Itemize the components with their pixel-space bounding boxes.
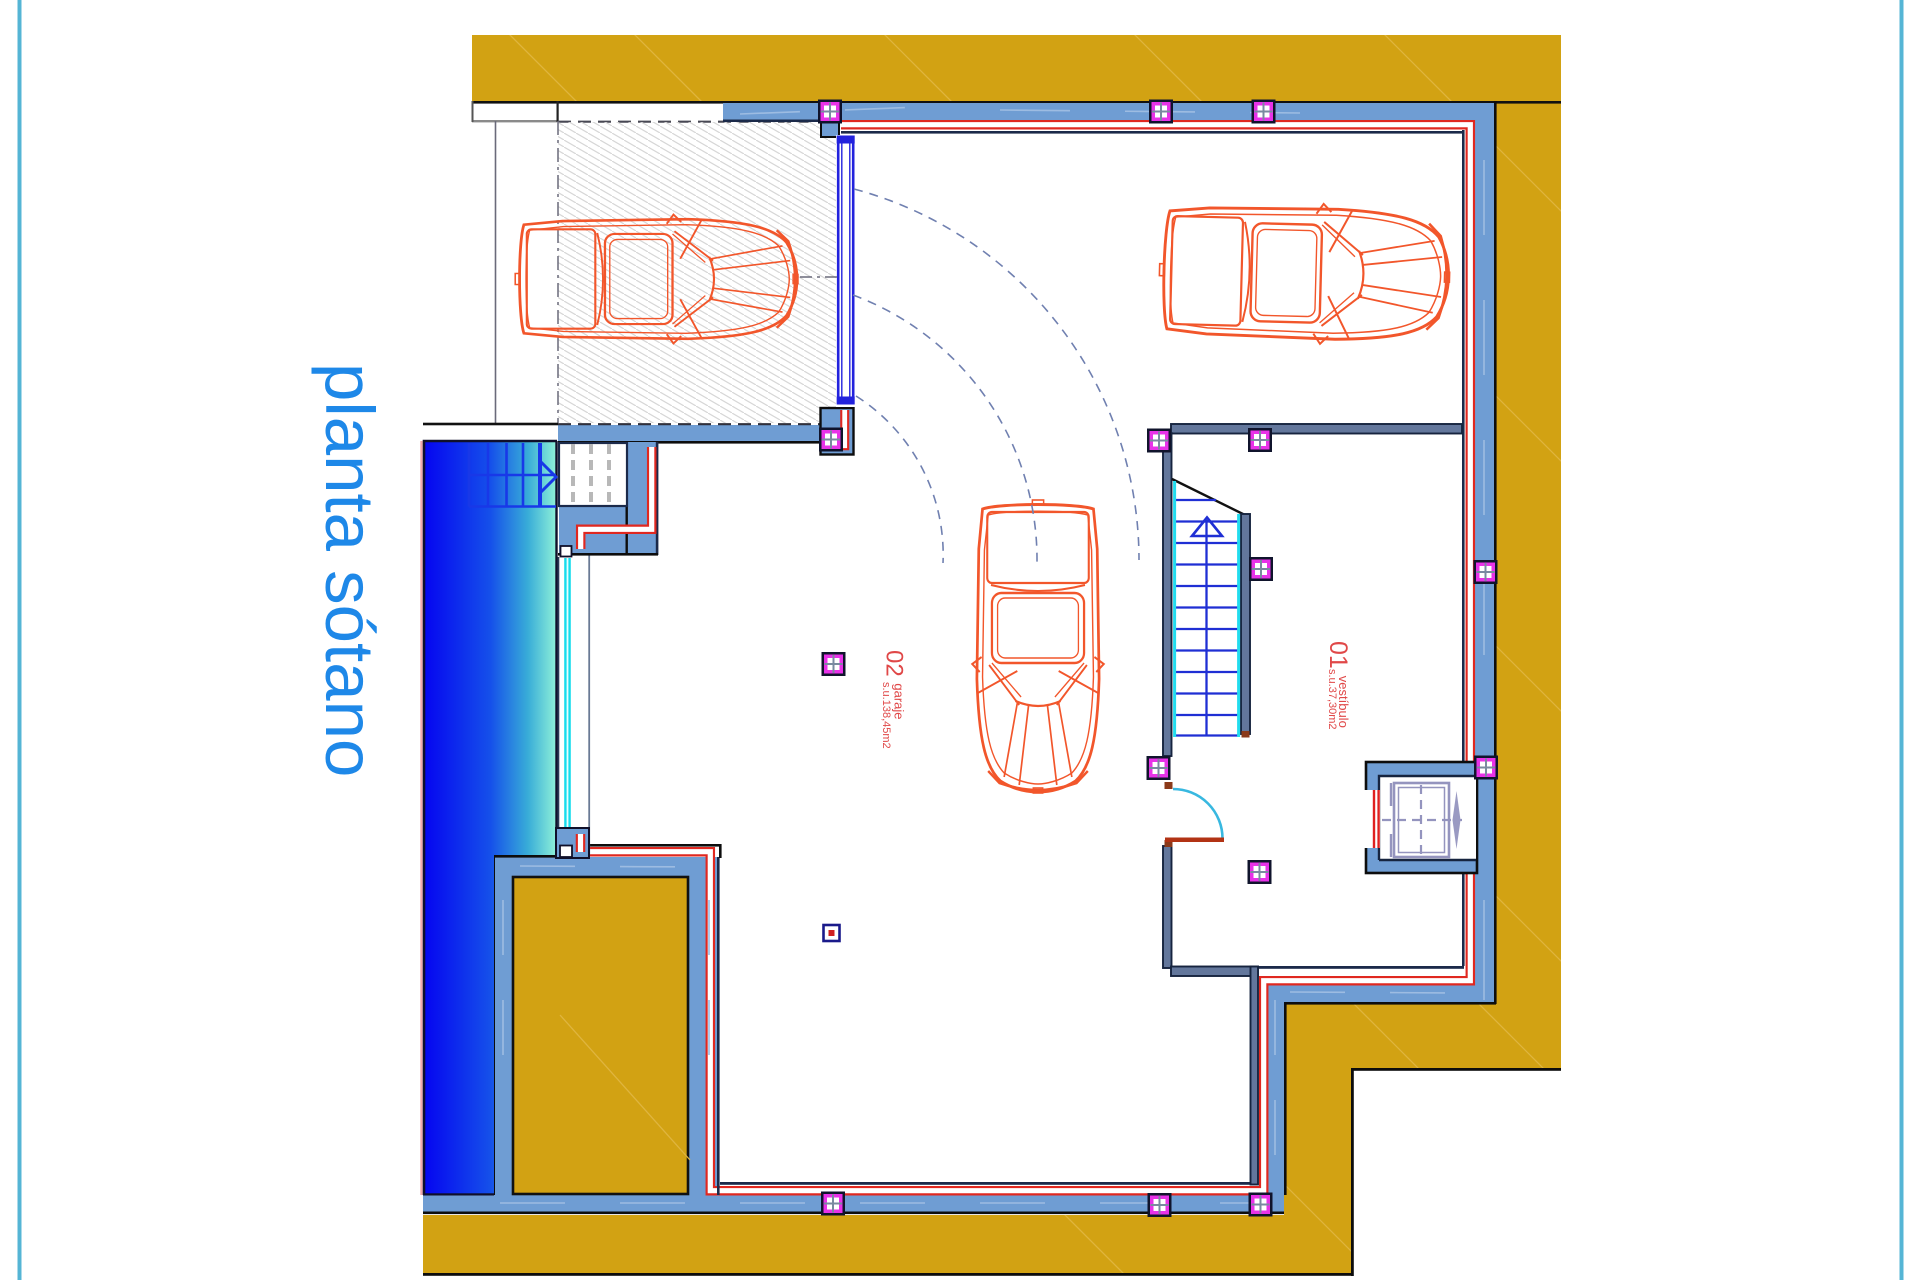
svg-text:s.u.138,45m2: s.u.138,45m2 [880, 682, 892, 749]
svg-text:s.u.37,30m2: s.u.37,30m2 [1326, 669, 1338, 730]
svg-text:planta sótano: planta sótano [311, 363, 388, 777]
